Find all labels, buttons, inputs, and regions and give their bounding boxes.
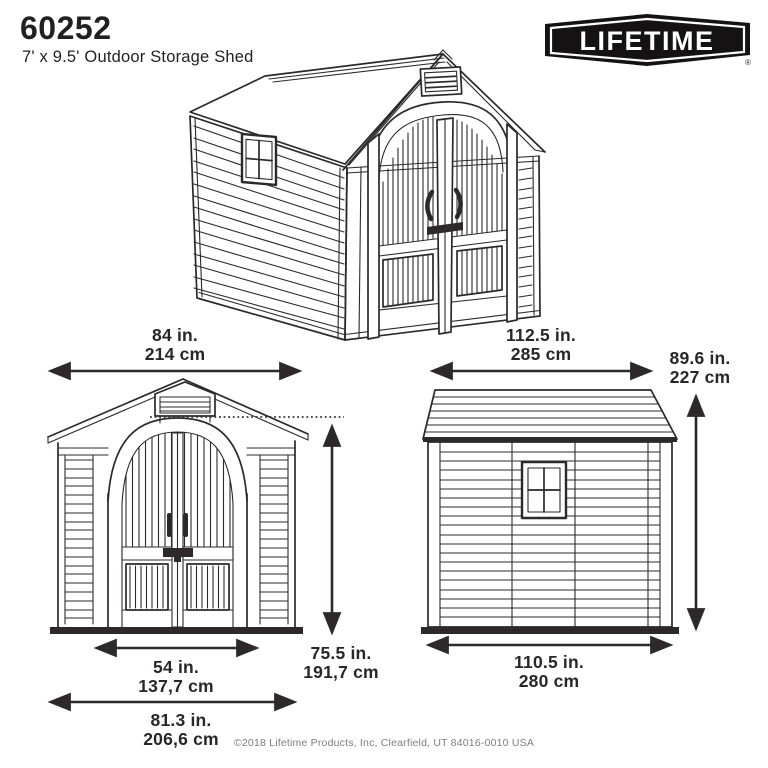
copyright-text: ©2018 Lifetime Products, Inc, Clearfield… [0, 737, 768, 749]
dimension-label-side-base-length: 110.5 in. 280 cm [469, 653, 629, 691]
dimension-label-peak-height: 89.6 in. 227 cm [630, 349, 768, 387]
dimension-label-door-width: 54 in. 137,7 cm [96, 658, 256, 696]
shed-dimension-sheet: 60252 7' x 9.5' Outdoor Storage Shed LIF… [0, 0, 768, 768]
dimension-label-door-height: 75.5 in. 191,7 cm [271, 644, 411, 682]
dimension-label-side-length: 112.5 in. 285 cm [461, 326, 621, 364]
dimension-label-front-width: 84 in. 214 cm [95, 326, 255, 364]
